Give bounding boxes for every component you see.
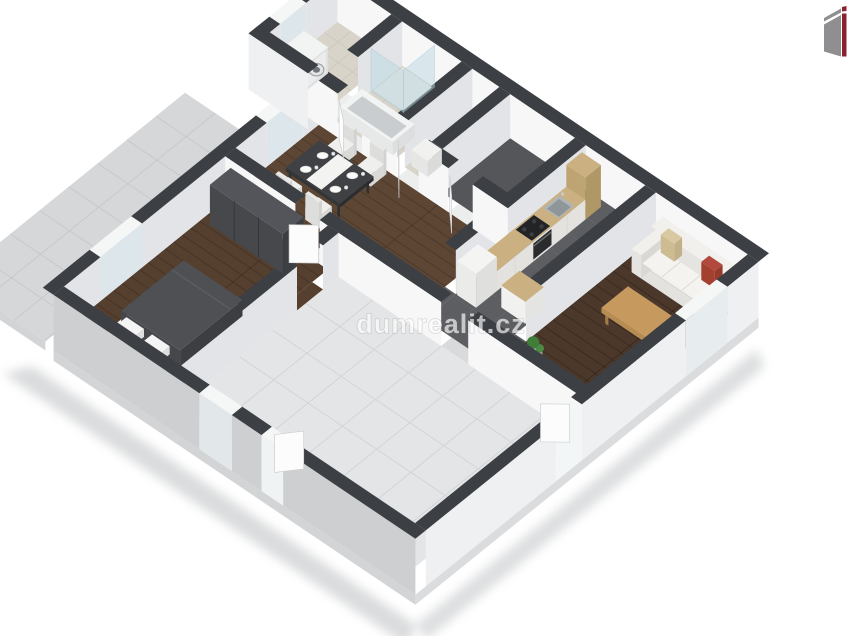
door-leaf-bedroom bbox=[289, 225, 318, 263]
dumrealit-logo bbox=[824, 6, 847, 57]
watermark-text: dumrealit.cz bbox=[356, 309, 526, 339]
floor-plan-image: dumrealit.cz bbox=[0, 0, 848, 636]
door-leaf-hall bbox=[399, 140, 400, 198]
door-leaf-se bbox=[541, 404, 570, 442]
door-leaf-largeroom bbox=[275, 431, 304, 473]
floor-plan-canvas: dumrealit.cz bbox=[0, 0, 848, 636]
